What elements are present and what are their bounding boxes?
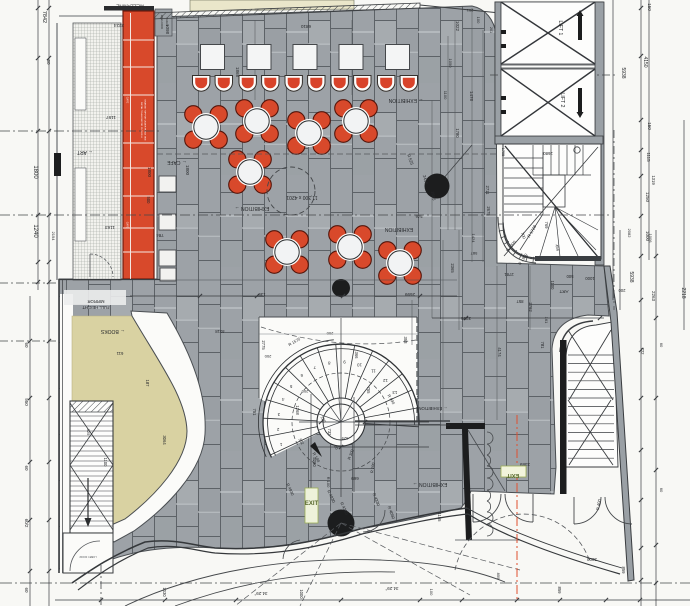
svg-text:6810: 6810	[300, 24, 311, 29]
svg-text:366: 366	[354, 352, 359, 360]
svg-text:751: 751	[252, 409, 257, 417]
svg-text:100: 100	[429, 589, 434, 596]
svg-text:R 100: R 100	[326, 477, 331, 488]
svg-text:7842: 7842	[41, 11, 47, 23]
svg-text:500: 500	[566, 274, 574, 279]
svg-text:325: 325	[86, 429, 91, 436]
svg-text:859: 859	[557, 587, 562, 595]
svg-text:2699: 2699	[404, 292, 415, 297]
svg-text:1000: 1000	[299, 589, 304, 599]
svg-text:10: 10	[357, 362, 362, 367]
svg-text:34.29°: 34.29°	[254, 591, 267, 596]
svg-text:EXHIBITION →: EXHIBITION →	[235, 205, 270, 211]
svg-text:60: 60	[659, 488, 664, 493]
svg-text:← ART: ← ART	[77, 149, 93, 155]
svg-text:546: 546	[415, 214, 423, 219]
svg-text:METAL TO ALLOW FOR CUTLER &: METAL TO ALLOW FOR CUTLER &	[140, 102, 143, 138]
svg-text:1795: 1795	[501, 148, 505, 156]
svg-text:ART: ART	[559, 289, 568, 294]
svg-text:200: 200	[618, 288, 626, 293]
svg-text:1800: 1800	[185, 165, 190, 176]
svg-text:1006: 1006	[648, 234, 653, 244]
svg-text:755: 755	[366, 387, 371, 395]
svg-text:LIFT 2: LIFT 2	[559, 93, 565, 108]
svg-text:200: 200	[326, 331, 333, 336]
svg-text:3000: 3000	[586, 557, 597, 562]
svg-text:EXIT: EXIT	[506, 472, 519, 478]
svg-text:784: 784	[156, 233, 164, 238]
svg-text:1800: 1800	[147, 167, 152, 178]
svg-text:611: 611	[116, 351, 123, 356]
svg-text:EXIT: EXIT	[305, 501, 319, 507]
svg-text:← EXHIBITION: ← EXHIBITION	[388, 97, 423, 103]
svg-text:859: 859	[621, 567, 626, 575]
svg-text:150: 150	[647, 122, 652, 130]
svg-text:1100: 1100	[443, 91, 448, 100]
svg-text:1115: 1115	[646, 152, 651, 162]
svg-text:4174: 4174	[497, 347, 502, 357]
svg-text:5938: 5938	[620, 67, 626, 78]
svg-text:2792: 2792	[528, 302, 533, 312]
svg-text:60: 60	[46, 59, 51, 65]
svg-text:2775: 2775	[261, 340, 266, 350]
svg-text:FULL HEIGHT: FULL HEIGHT	[82, 305, 110, 310]
svg-text:1800: 1800	[32, 165, 38, 179]
svg-text:1780: 1780	[455, 128, 460, 138]
svg-text:2263: 2263	[651, 291, 656, 302]
svg-text:EXHIBITION →: EXHIBITION →	[413, 481, 448, 487]
svg-text:13: 13	[392, 390, 397, 395]
svg-text:1100: 1100	[550, 280, 555, 290]
svg-text:CAFE: CAFE	[126, 97, 129, 104]
svg-text:161: 161	[544, 317, 549, 324]
svg-text:60: 60	[659, 343, 664, 348]
svg-text:150: 150	[647, 3, 652, 11]
svg-text:1868: 1868	[235, 67, 240, 78]
svg-text:1240: 1240	[32, 224, 38, 238]
svg-text:1030: 1030	[162, 587, 167, 597]
svg-text:1050: 1050	[448, 59, 453, 69]
svg-text:859: 859	[496, 573, 501, 580]
svg-text:500: 500	[146, 197, 151, 205]
svg-text:11: 11	[371, 368, 376, 373]
svg-text:353: 353	[403, 337, 408, 345]
svg-text:34.29°: 34.29°	[385, 586, 398, 591]
svg-text:12: 12	[382, 378, 387, 383]
svg-text:187: 187	[145, 380, 150, 388]
svg-text:1098: 1098	[165, 24, 170, 35]
svg-text:781: 781	[540, 342, 545, 350]
svg-text:1424: 1424	[471, 234, 476, 244]
svg-text:329: 329	[341, 436, 348, 441]
svg-text:722: 722	[640, 348, 645, 356]
svg-text:1157: 1157	[106, 115, 116, 120]
svg-text:60/2: 60/2	[24, 519, 29, 528]
svg-text:60: 60	[24, 587, 29, 593]
svg-text:2224: 2224	[113, 23, 124, 28]
svg-text:669: 669	[351, 476, 359, 481]
svg-text:100: 100	[476, 17, 481, 24]
svg-text:1022: 1022	[455, 21, 460, 32]
svg-text:732: 732	[327, 429, 332, 437]
svg-text:ORANGE TOP FOR UNDER PLANE ONE: ORANGE TOP FOR UNDER PLANE ONE	[144, 99, 147, 141]
svg-text:200: 200	[301, 389, 308, 394]
svg-text:200: 200	[264, 354, 271, 359]
svg-text:← BOOKS: ← BOOKS	[100, 328, 125, 334]
svg-text:60: 60	[24, 342, 29, 348]
svg-text:1000: 1000	[585, 276, 595, 281]
svg-text:LIFT 1: LIFT 1	[557, 21, 563, 36]
svg-text:11,300 x 4201: 11,300 x 4201	[286, 194, 318, 200]
svg-text:857: 857	[516, 299, 524, 304]
svg-text:1163: 1163	[105, 225, 115, 230]
svg-text:5938: 5938	[628, 271, 634, 282]
svg-text:EXHIBITION: EXHIBITION	[384, 226, 413, 232]
svg-text:4018: 4018	[215, 329, 225, 334]
svg-text:1100: 1100	[103, 457, 108, 467]
svg-text:MEZZANINE: MEZZANINE	[116, 3, 144, 9]
svg-text:1268: 1268	[295, 405, 300, 415]
svg-text:3295: 3295	[460, 316, 471, 321]
svg-text:769: 769	[544, 222, 549, 230]
svg-text:2711: 2711	[485, 185, 490, 195]
svg-text:201: 201	[466, 8, 473, 13]
svg-text:← CAFE: ← CAFE	[166, 159, 186, 165]
svg-text:CAFE: CAFE	[126, 222, 129, 229]
svg-text:LOBBY DOOR: LOBBY DOOR	[79, 555, 96, 559]
svg-text:1478: 1478	[469, 91, 474, 102]
svg-text:MIRROR: MIRROR	[88, 299, 105, 304]
svg-text:139: 139	[258, 292, 266, 297]
svg-text:2218: 2218	[680, 287, 686, 298]
svg-text:1155: 1155	[437, 512, 442, 522]
svg-text:2194: 2194	[51, 232, 56, 242]
svg-text:1319: 1319	[651, 175, 656, 185]
svg-text:587: 587	[470, 251, 477, 256]
svg-text:2680: 2680	[543, 151, 553, 156]
svg-text:2781: 2781	[504, 272, 514, 277]
svg-text:2082: 2082	[627, 229, 632, 239]
svg-text:60: 60	[24, 465, 29, 471]
svg-text:950: 950	[24, 398, 29, 406]
svg-text:1250: 1250	[645, 192, 650, 203]
svg-text:4150: 4150	[642, 56, 648, 67]
svg-text:2365: 2365	[450, 263, 455, 273]
svg-text:2675: 2675	[486, 206, 491, 216]
svg-text:← EXHIBITION: ← EXHIBITION	[418, 406, 447, 411]
svg-text:3064: 3064	[162, 435, 167, 445]
svg-text:201: 201	[489, 27, 493, 33]
